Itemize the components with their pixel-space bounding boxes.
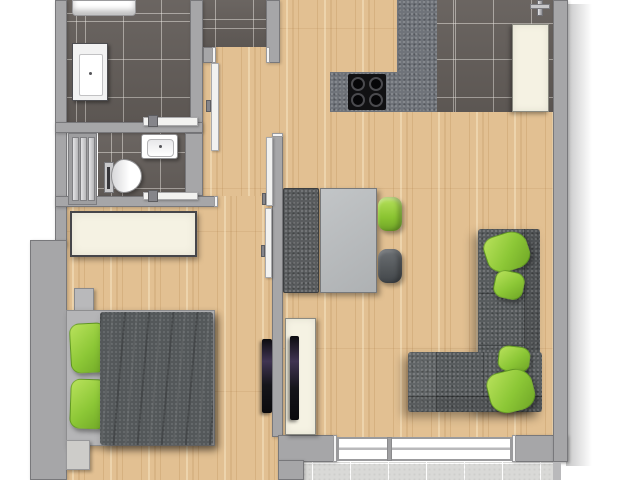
wall-balcony-left [278, 460, 304, 480]
dining-table [320, 188, 377, 293]
sofa-seam [483, 352, 484, 397]
wall-left-lower [30, 240, 67, 480]
wall-cap-vestibule-left [212, 47, 216, 63]
entry-door-leaf [211, 63, 219, 151]
bed-duvet [100, 312, 213, 445]
floor-vestibule [203, 0, 266, 47]
washing-machine [72, 43, 108, 101]
wc-sink [141, 134, 178, 159]
wall-wc-right [185, 133, 203, 196]
kitchen-faucet [530, 0, 548, 14]
wall-cap-divider-top [272, 133, 283, 137]
wall-hall-living-divider [272, 133, 283, 437]
entry-door-handle [206, 100, 211, 112]
toilet-tank-lid [107, 167, 110, 189]
washing-machine-knob [89, 72, 92, 75]
floor-plan [0, 0, 640, 480]
wall-cap-window-right [512, 435, 516, 462]
dining-chair-gray [378, 249, 402, 283]
burner [369, 93, 383, 107]
wc-sink-faucet-dot [159, 145, 162, 148]
wc-sliding-door-handle [148, 190, 158, 202]
wall-balcony-right [553, 462, 561, 480]
window-mullion [387, 437, 392, 461]
living-tv [290, 336, 299, 420]
burner [369, 77, 383, 91]
wall-cap-vestibule-right [266, 47, 270, 63]
sofa-armrest-left [408, 352, 437, 412]
dining-bench [283, 188, 319, 293]
bedroom-wardrobe [70, 211, 197, 257]
wc-shelf-slat [72, 137, 79, 201]
kitchen-faucet-cross [530, 4, 550, 9]
wall-right [553, 0, 568, 462]
living-door-handle [262, 193, 266, 205]
bedroom-door-handle [261, 245, 265, 257]
cast-shadow-right [566, 4, 592, 466]
wc-shelf-slat [80, 137, 87, 201]
wc-sink-bowl [147, 139, 174, 157]
window-band [337, 437, 512, 461]
wc-shelf-slat [88, 137, 95, 201]
bedroom-wall-tv [262, 339, 272, 413]
wall-bottom-left [278, 435, 337, 462]
kitchen-tall-cabinet [512, 24, 549, 112]
wall-bathroom-right [190, 0, 203, 133]
burner [351, 77, 365, 91]
washing-machine-door [79, 54, 103, 96]
living-door-leaf [266, 137, 273, 206]
dining-chair-green [378, 197, 402, 231]
nightstand-bottom [66, 440, 90, 470]
floor-balcony [302, 462, 560, 480]
bedroom-door-leaf [265, 208, 272, 278]
bathroom-sliding-door-handle [148, 115, 158, 127]
cooktop [348, 74, 386, 110]
burner [351, 93, 365, 107]
wc-shelf-unit [68, 133, 97, 205]
shower-tray [72, 0, 136, 16]
wall-cap-bedroom-top [214, 196, 218, 207]
